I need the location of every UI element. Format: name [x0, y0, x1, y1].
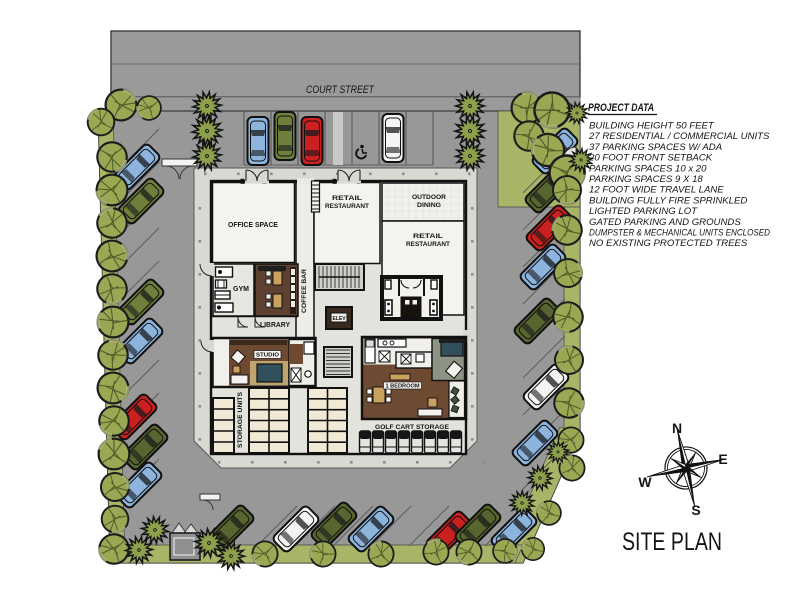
svg-text:PROJECT DATA: PROJECT DATA	[588, 102, 654, 114]
svg-text:STUDIO: STUDIO	[256, 353, 280, 359]
svg-text:PARKING SPACES 10 x 20: PARKING SPACES 10 x 20	[589, 163, 707, 174]
svg-text:COFFEE BAR: COFFEE BAR	[301, 269, 308, 313]
svg-text:12 FOOT WIDE TRAVEL LANE: 12 FOOT WIDE TRAVEL LANE	[589, 185, 724, 196]
svg-text:E: E	[718, 451, 727, 467]
svg-text:GOLF CART STORAGE: GOLF CART STORAGE	[375, 425, 449, 431]
svg-text:PARKING SPACES 9 X 18: PARKING SPACES 9 X 18	[589, 174, 703, 185]
svg-text:OUTDOOR: OUTDOOR	[412, 194, 446, 201]
svg-text:STORAGE UNITS: STORAGE UNITS	[237, 391, 244, 448]
svg-text:1 BEDROOM: 1 BEDROOM	[386, 384, 420, 390]
svg-text:27 RESIDENTIAL / COMMERCIAL UN: 27 RESIDENTIAL / COMMERCIAL UNITS	[588, 131, 770, 142]
svg-text:GATED PARKING AND GROUNDS: GATED PARKING AND GROUNDS	[589, 217, 741, 228]
svg-text:ELEV: ELEV	[332, 316, 346, 322]
svg-text:LIGHTED PARKING LOT: LIGHTED PARKING LOT	[589, 206, 698, 217]
svg-text:COURT STREET: COURT STREET	[306, 84, 375, 96]
svg-text:DUMPSTER & MECHANICAL UNITS EN: DUMPSTER & MECHANICAL UNITS ENCLOSED	[589, 228, 770, 239]
svg-text:BUILDING FULLY FIRE SPRINKLED: BUILDING FULLY FIRE SPRINKLED	[589, 195, 747, 206]
svg-text:RETAIL: RETAIL	[332, 195, 362, 202]
svg-text:RESTAURANT: RESTAURANT	[406, 241, 450, 248]
svg-text:DINING: DINING	[417, 202, 441, 209]
svg-text:RESTAURANT: RESTAURANT	[325, 203, 369, 210]
svg-text:N: N	[672, 420, 682, 436]
svg-text:SITE PLAN: SITE PLAN	[622, 528, 722, 556]
svg-text:S: S	[691, 502, 700, 518]
svg-text:W: W	[638, 474, 652, 490]
svg-text:BUILDING HEIGHT 50 FEET: BUILDING HEIGHT 50 FEET	[589, 121, 715, 132]
svg-text:RETAIL: RETAIL	[413, 233, 443, 240]
svg-text:20 FOOT FRONT SETBACK: 20 FOOT FRONT SETBACK	[588, 153, 713, 164]
svg-text:GYM: GYM	[233, 286, 249, 293]
svg-text:NO EXISTING PROTECTED TREES: NO EXISTING PROTECTED TREES	[589, 238, 748, 249]
svg-text:37 PARKING SPACES W/ ADA: 37 PARKING SPACES W/ ADA	[589, 142, 722, 153]
svg-text:LIBRARY: LIBRARY	[260, 322, 290, 329]
svg-text:OFFICE SPACE: OFFICE SPACE	[228, 222, 278, 229]
